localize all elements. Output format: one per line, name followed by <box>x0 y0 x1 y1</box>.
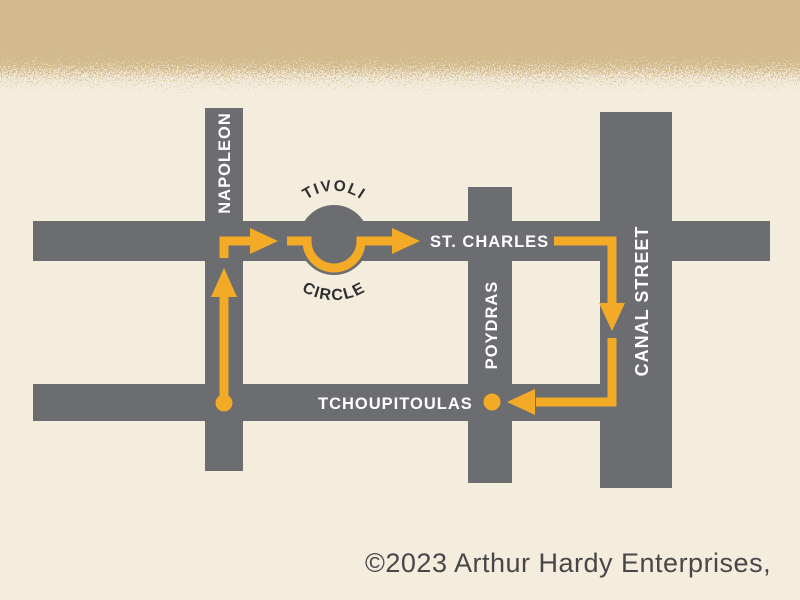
parade-route-map: NAPOLEON ST. CHARLES POYDRAS CANAL STREE… <box>0 0 800 600</box>
route-end-dot <box>484 394 501 411</box>
label-poydras: POYDRAS <box>483 281 501 370</box>
top-texture-band <box>0 0 800 122</box>
label-canal-street: CANAL STREET <box>632 226 652 377</box>
label-napoleon: NAPOLEON <box>216 112 234 214</box>
top-band-grain <box>0 0 800 122</box>
copyright-text: ©2023 Arthur Hardy Enterprises, <box>365 548 771 578</box>
label-st-charles: ST. CHARLES <box>430 233 549 251</box>
label-tchoupitoulas: TCHOUPITOULAS <box>318 395 473 413</box>
route-start-dot <box>216 395 233 412</box>
